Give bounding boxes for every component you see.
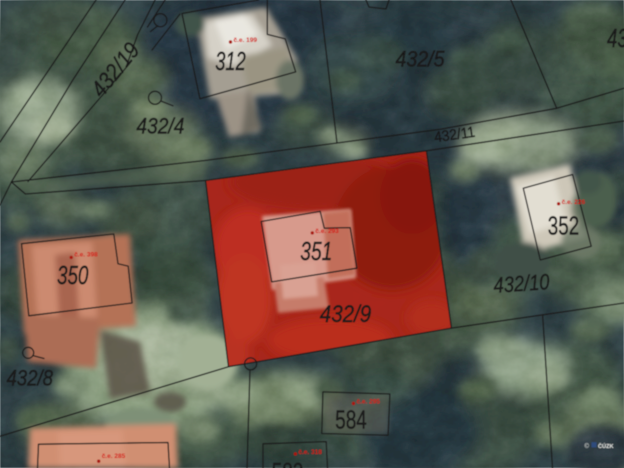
svg-text:č.e. 293: č.e. 293: [315, 228, 339, 235]
svg-text:351: 351: [300, 236, 332, 266]
svg-text:432/5: 432/5: [396, 47, 446, 72]
svg-text:č.e. 199: č.e. 199: [234, 37, 258, 44]
svg-text:č.e. 318: č.e. 318: [298, 449, 322, 456]
svg-text:ČÚZK: ČÚZK: [598, 443, 614, 450]
svg-text:432/10: 432/10: [493, 269, 551, 298]
svg-text:č.e. 398: č.e. 398: [74, 252, 98, 259]
svg-text:352: 352: [548, 210, 579, 240]
svg-text:350: 350: [57, 260, 89, 290]
svg-text:©: ©: [585, 443, 590, 450]
svg-text:432/8: 432/8: [6, 366, 53, 391]
svg-text:583: 583: [272, 457, 304, 468]
svg-text:312: 312: [215, 46, 246, 76]
svg-text:432/9: 432/9: [320, 301, 372, 328]
svg-text:584: 584: [335, 405, 367, 435]
svg-text:432/4: 432/4: [136, 114, 184, 139]
svg-text:č.e. 295: č.e. 295: [357, 399, 381, 406]
svg-text:č.e. 226: č.e. 226: [562, 199, 586, 206]
svg-text:432: 432: [607, 23, 624, 53]
svg-text:č.e. 285: č.e. 285: [102, 453, 126, 460]
